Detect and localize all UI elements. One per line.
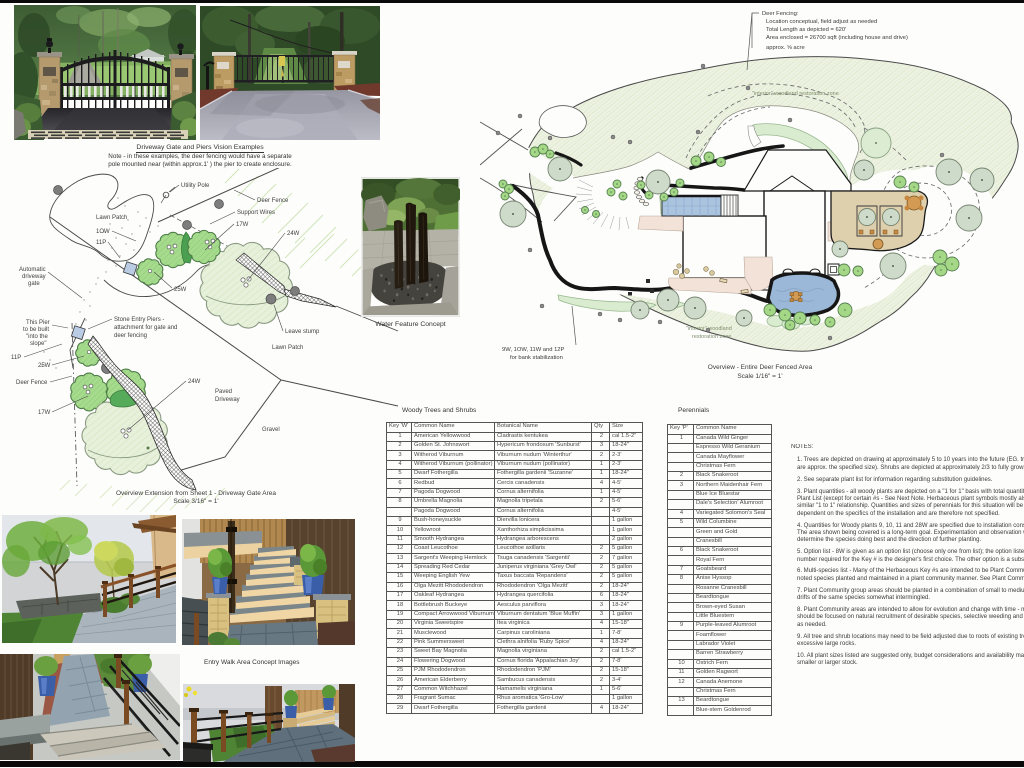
svg-text:Scale 1/16" = 1': Scale 1/16" = 1' [737, 373, 782, 380]
svg-text:24W: 24W [188, 379, 201, 385]
svg-text:Lawn Patch: Lawn Patch [272, 345, 303, 351]
svg-text:17W: 17W [38, 410, 51, 416]
svg-text:25W: 25W [174, 287, 187, 293]
svg-text:Leave stump: Leave stump [285, 329, 320, 335]
svg-text:attachment for gate and: attachment for gate and [114, 325, 177, 331]
svg-text:approx. ⅝ acre: approx. ⅝ acre [766, 45, 805, 51]
svg-text:Overview Extension from Sheet: Overview Extension from Sheet 1 - Drivew… [116, 490, 276, 497]
svg-text:Automatic: Automatic [19, 267, 46, 273]
svg-text:Lawn Patch: Lawn Patch [96, 215, 127, 221]
svg-text:driveway: driveway [22, 274, 46, 280]
svg-text:"interior" woodland restoratio: "interior" woodland restoration zone [752, 91, 839, 97]
svg-text:Deer Fence: Deer Fence [257, 198, 289, 204]
svg-text:17W: 17W [236, 222, 249, 228]
svg-text:Scale 3/16" = 1': Scale 3/16" = 1' [173, 498, 218, 505]
svg-text:Gravel: Gravel [262, 427, 280, 433]
svg-text:"interior" woodland: "interior" woodland [686, 326, 732, 332]
svg-text:Deer Fence: Deer Fence [16, 380, 48, 386]
svg-text:9W, 1OW, 11W and 12P: 9W, 1OW, 11W and 12P [502, 347, 565, 353]
svg-text:This Pier: This Pier [26, 320, 50, 326]
svg-text:1OW: 1OW [96, 229, 110, 235]
svg-text:Support Wires: Support Wires [237, 210, 275, 216]
svg-text:restoration zone: restoration zone [692, 334, 731, 340]
svg-text:Driveway: Driveway [215, 397, 240, 403]
svg-text:24W: 24W [287, 231, 300, 237]
svg-text:Overview - Entire Deer Fenced: Overview - Entire Deer Fenced Area [708, 364, 813, 371]
svg-text:for bank stabilization: for bank stabilization [510, 355, 563, 361]
svg-text:25W: 25W [38, 363, 51, 369]
svg-text:to be built: to be built [23, 327, 49, 333]
svg-text:"into the: "into the [26, 334, 48, 340]
svg-text:Utility Pole: Utility Pole [181, 183, 210, 189]
svg-text:Area enclosed = 26700 sqft (in: Area enclosed = 26700 sqft (including ho… [766, 35, 908, 41]
svg-text:slope": slope" [30, 341, 46, 347]
svg-text:deer fencing: deer fencing [114, 333, 147, 339]
svg-text:11P: 11P [96, 240, 106, 246]
svg-text:Location conceptual, field adj: Location conceptual, field adjust as nee… [766, 19, 877, 25]
svg-text:Deer Fencing:: Deer Fencing: [762, 11, 799, 17]
svg-text:Paved: Paved [215, 389, 232, 395]
svg-text:Total Length as depicted = 620: Total Length as depicted = 620' [766, 27, 846, 33]
svg-text:gate: gate [28, 281, 40, 287]
svg-text:Stone Entry Piers -: Stone Entry Piers - [114, 317, 164, 323]
svg-text:11P: 11P [11, 355, 21, 361]
